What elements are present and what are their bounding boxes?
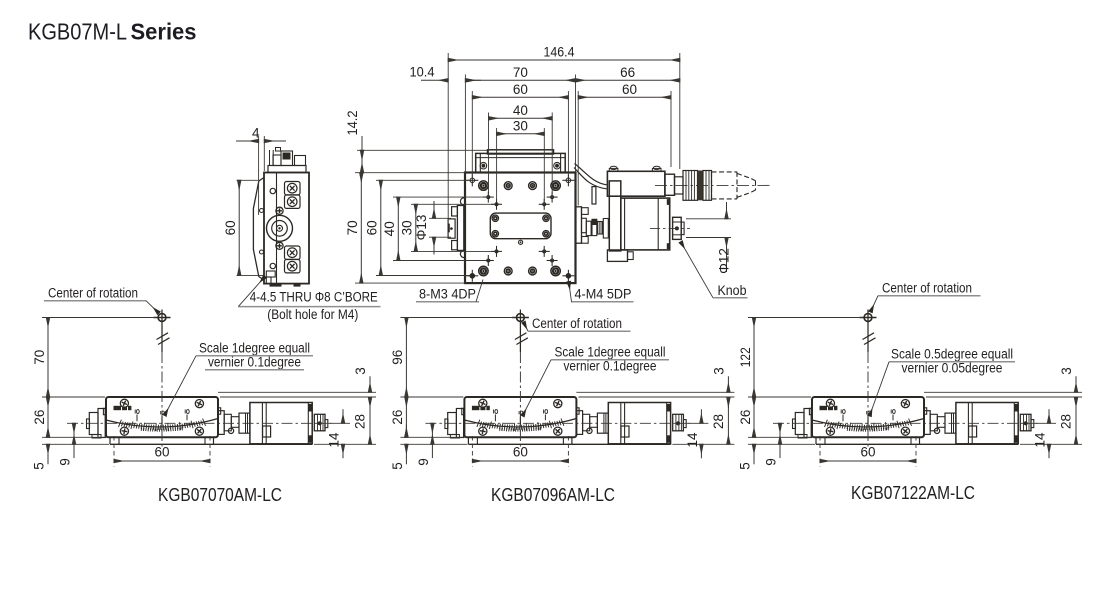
svg-text:70: 70 [345, 220, 360, 235]
svg-text:60: 60 [365, 220, 380, 235]
svg-text:Φ12: Φ12 [717, 248, 732, 274]
svg-text:KGB07096AM-LC: KGB07096AM-LC [491, 484, 615, 505]
svg-text:Center of rotation: Center of rotation [532, 316, 622, 331]
svg-text:60: 60 [622, 82, 637, 97]
svg-text:146.4: 146.4 [544, 45, 575, 60]
svg-text:10.4: 10.4 [410, 65, 435, 80]
svg-text:Scale 0.5degree equall: Scale 0.5degree equall [891, 347, 1013, 362]
svg-text:KGB07M-L: KGB07M-L [28, 19, 127, 45]
svg-text:KGB07122AM-LC: KGB07122AM-LC [851, 482, 975, 503]
svg-text:40: 40 [382, 221, 397, 236]
svg-text:Scale 1degree equall: Scale 1degree equall [555, 345, 666, 360]
svg-text:40: 40 [513, 103, 528, 118]
svg-text:60: 60 [223, 220, 238, 235]
svg-text:30: 30 [513, 118, 528, 133]
svg-text:Center of rotation: Center of rotation [882, 280, 972, 295]
svg-text:Series: Series [131, 19, 197, 45]
svg-text:(Bolt hole for M4): (Bolt hole for M4) [267, 307, 358, 322]
svg-text:KGB07070AM-LC: KGB07070AM-LC [158, 484, 282, 505]
svg-text:vernier 0.05degree: vernier 0.05degree [902, 361, 1003, 376]
svg-text:70: 70 [513, 65, 528, 80]
svg-text:70: 70 [32, 350, 47, 365]
svg-text:60: 60 [513, 82, 528, 97]
svg-text:4-4.5 THRU Φ8 C’BORE: 4-4.5 THRU Φ8 C’BORE [250, 290, 378, 305]
svg-text:14.2: 14.2 [345, 111, 360, 136]
svg-text:vernier 0.1degree: vernier 0.1degree [208, 355, 301, 370]
svg-text:4-M4 5DP: 4-M4 5DP [575, 287, 632, 302]
svg-text:Φ13: Φ13 [414, 215, 429, 241]
svg-text:Center of rotation: Center of rotation [48, 285, 138, 300]
svg-text:30: 30 [400, 220, 415, 235]
svg-text:4: 4 [252, 126, 260, 141]
svg-text:Scale 1degree equall: Scale 1degree equall [199, 341, 310, 356]
svg-text:122: 122 [738, 347, 753, 367]
svg-text:66: 66 [620, 65, 635, 80]
svg-text:96: 96 [390, 350, 405, 365]
svg-text:vernier 0.1degree: vernier 0.1degree [564, 359, 657, 374]
svg-text:8-M3 4DP: 8-M3 4DP [419, 287, 476, 302]
svg-text:Knob: Knob [718, 283, 747, 298]
